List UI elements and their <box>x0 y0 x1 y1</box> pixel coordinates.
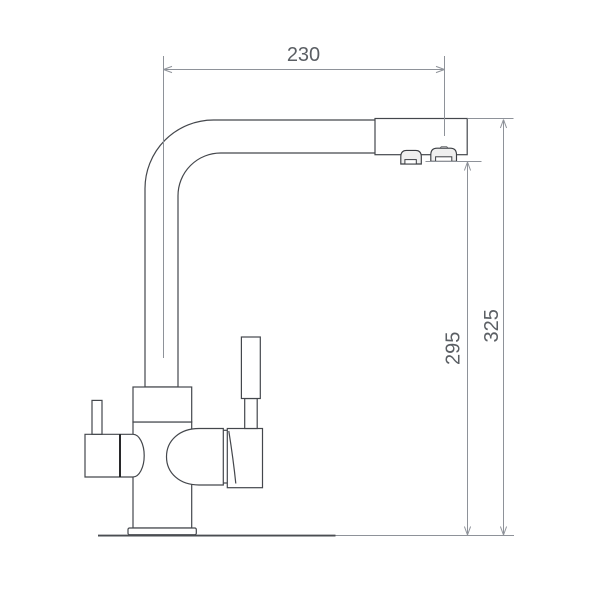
svg-text:325: 325 <box>481 309 503 342</box>
svg-text:295: 295 <box>443 332 465 365</box>
svg-text:230: 230 <box>287 44 320 66</box>
